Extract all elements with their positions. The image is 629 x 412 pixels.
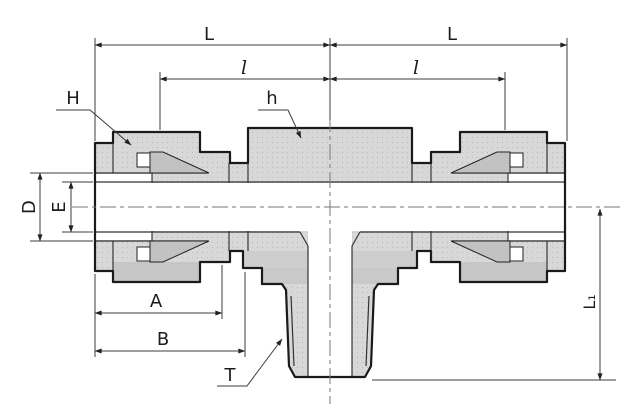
- tee-fitting-drawing: L L l l H h D E A B T L₁: [0, 0, 629, 412]
- dim-label-D: D: [19, 200, 40, 214]
- left-nut-shade: [113, 262, 200, 282]
- dim-label-A: A: [150, 291, 163, 312]
- left-bottom-back-ferrule: [137, 247, 150, 261]
- dim-label-h: h: [266, 88, 277, 109]
- dim-label-L-right: L: [447, 24, 457, 45]
- dim-label-H: H: [66, 88, 80, 109]
- dim-label-l-left: l: [241, 57, 247, 79]
- right-top-back-ferrule: [510, 153, 523, 167]
- right-nut-shade: [460, 262, 547, 282]
- dim-label-E: E: [49, 201, 70, 212]
- right-bottom-back-ferrule: [510, 247, 523, 261]
- drawing-sheet: L L l l H h D E A B T L₁: [0, 0, 629, 412]
- dim-label-l-right: l: [413, 57, 419, 79]
- dim-label-T: T: [224, 365, 237, 386]
- left-top-back-ferrule: [137, 153, 150, 167]
- dim-label-B: B: [157, 329, 169, 350]
- dim-label-L1: L₁: [580, 294, 599, 309]
- dim-label-L-left: L: [204, 24, 214, 45]
